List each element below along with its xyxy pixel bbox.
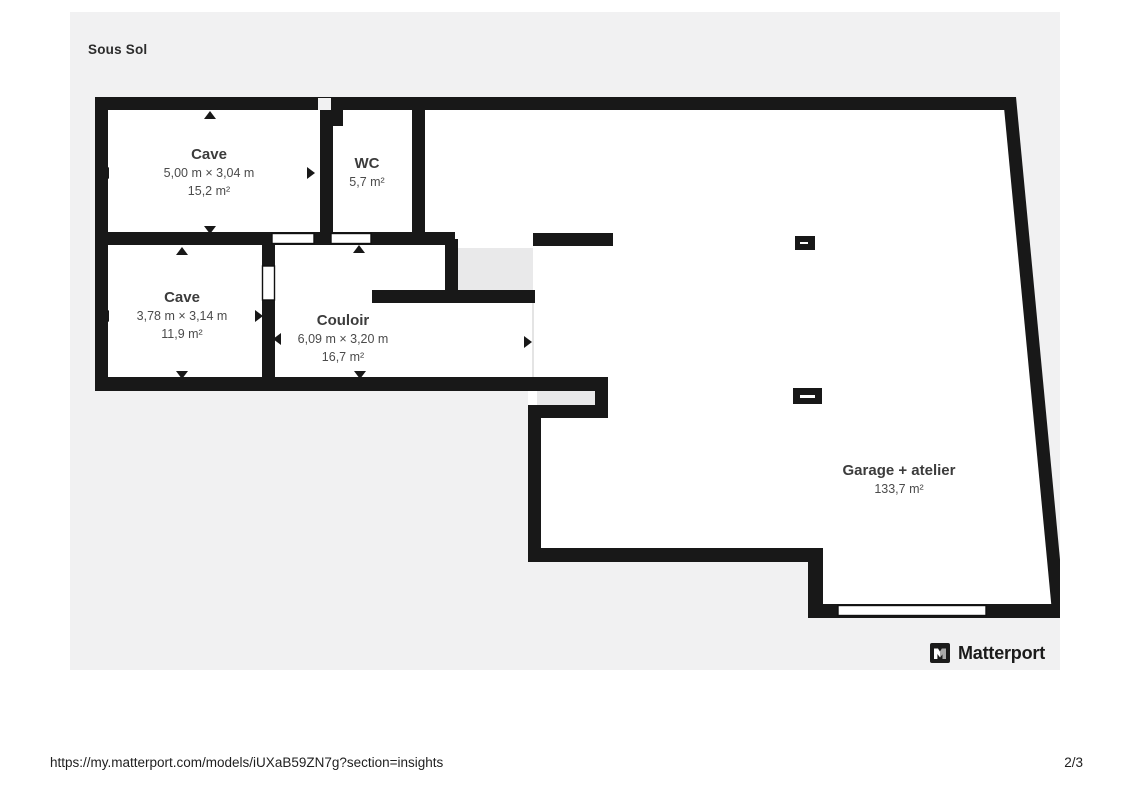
room-area: 11,9 m² — [137, 327, 228, 341]
room-label-cave-1: Cave 5,00 m × 3,04 m 15,2 m² — [164, 146, 255, 198]
matterport-logo-text: Matterport — [958, 643, 1045, 664]
room-label-couloir: Couloir 6,09 m × 3,20 m 16,7 m² — [298, 312, 389, 364]
room-dimensions: 3,78 m × 3,14 m — [137, 309, 228, 323]
page-indicator: 2/3 — [1064, 755, 1083, 770]
wall-stub — [329, 110, 343, 126]
room-label-garage: Garage + atelier 133,7 m² — [843, 462, 956, 497]
room-name: Cave — [164, 146, 255, 163]
room-area: 133,7 m² — [843, 482, 956, 496]
room-dimensions: 5,00 m × 3,04 m — [164, 166, 255, 180]
room-name: Cave — [137, 289, 228, 306]
room-area: 16,7 m² — [298, 350, 389, 364]
pdf-page: { "page": { "title": "Sous Sol", "footer… — [0, 0, 1130, 800]
room-dimensions: 6,09 m × 3,20 m — [298, 332, 389, 346]
room-name: Garage + atelier — [843, 462, 956, 479]
room-name: WC — [349, 155, 384, 172]
matterport-logo: Matterport — [929, 640, 1045, 666]
room-label-wc: WC 5,7 m² — [349, 155, 384, 190]
room-label-cave-2: Cave 3,78 m × 3,14 m 11,9 m² — [137, 289, 228, 341]
room-name: Couloir — [298, 312, 389, 329]
floorplan-canvas: Sous Sol Cave 5,00 m × 3,04 m 15,2 m² WC… — [70, 12, 1060, 670]
floorplan-drawing — [70, 12, 1060, 670]
footer-url: https://my.matterport.com/models/iUXaB59… — [50, 755, 443, 770]
wall-notch — [318, 98, 331, 110]
page-title: Sous Sol — [88, 42, 147, 57]
room-area: 5,7 m² — [349, 175, 384, 189]
room-area: 15,2 m² — [164, 184, 255, 198]
matterport-logo-icon — [929, 642, 951, 664]
